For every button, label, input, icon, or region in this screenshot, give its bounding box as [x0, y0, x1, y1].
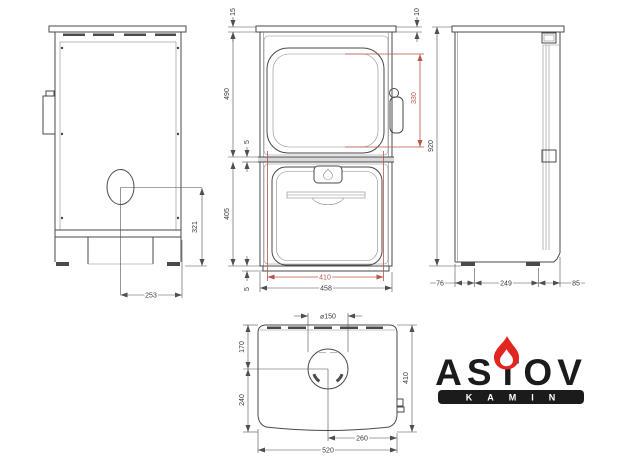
view-back: 321 253 — [43, 26, 207, 300]
emblem-badge — [314, 166, 342, 183]
top-handle — [397, 399, 403, 406]
dim-glass-height: 330 — [411, 92, 418, 104]
dim-depth: 410 — [403, 372, 410, 384]
dim-gap-top: 5 — [244, 140, 251, 144]
dim-rear: 76 — [436, 281, 444, 288]
dim-gap-bottom: 5 — [244, 287, 251, 291]
dim-width: 520 — [322, 448, 334, 455]
dim-body-width: 458 — [320, 286, 332, 293]
dim-flue-diameter: ⌀150 — [320, 314, 336, 321]
top-dimensions: ⌀150 170 240 410 260 520 — [239, 313, 417, 455]
dim-plate-edge: 10 — [414, 8, 421, 16]
dim-lower-height: 405 — [224, 208, 231, 220]
brand-logo: ASTOV KAMIN — [435, 336, 587, 404]
dim-back-to-flue: 170 — [239, 341, 246, 353]
front-dimensions: 15 490 5 405 5 10 330 — [224, 8, 424, 292]
dim-flue-to-front: 240 — [239, 394, 246, 406]
dim-glass-width: 410 — [319, 275, 331, 282]
front-outline — [256, 26, 403, 271]
dim-base: 249 — [500, 281, 512, 288]
dim-upper-height: 490 — [224, 88, 231, 100]
back-outline — [43, 26, 186, 266]
side-handle — [43, 96, 55, 134]
dim-flue-to-edge: 253 — [145, 293, 157, 300]
dim-front: 85 — [572, 281, 580, 288]
top-outline — [258, 325, 404, 431]
back-dimensions: 321 253 — [121, 188, 208, 300]
brand-subtitle: KAMIN — [466, 393, 571, 403]
flame-icon — [494, 336, 519, 370]
stove-technical-drawing: 321 253 — [0, 0, 624, 460]
dim-flue-to-floor: 321 — [192, 221, 199, 233]
side-dimensions: 920 76 249 85 — [428, 27, 585, 288]
view-top: ⌀150 170 240 410 260 520 — [239, 313, 417, 455]
view-side: 920 76 249 85 — [428, 26, 585, 288]
dim-flue-to-side: 260 — [356, 436, 368, 443]
dim-top-plate: 15 — [230, 8, 237, 16]
drawing-canvas: 321 253 — [0, 0, 624, 460]
view-front: 15 490 5 405 5 10 330 — [224, 8, 424, 292]
dim-total-height: 920 — [428, 140, 435, 152]
side-outline — [452, 26, 564, 266]
fire-window — [267, 48, 384, 153]
